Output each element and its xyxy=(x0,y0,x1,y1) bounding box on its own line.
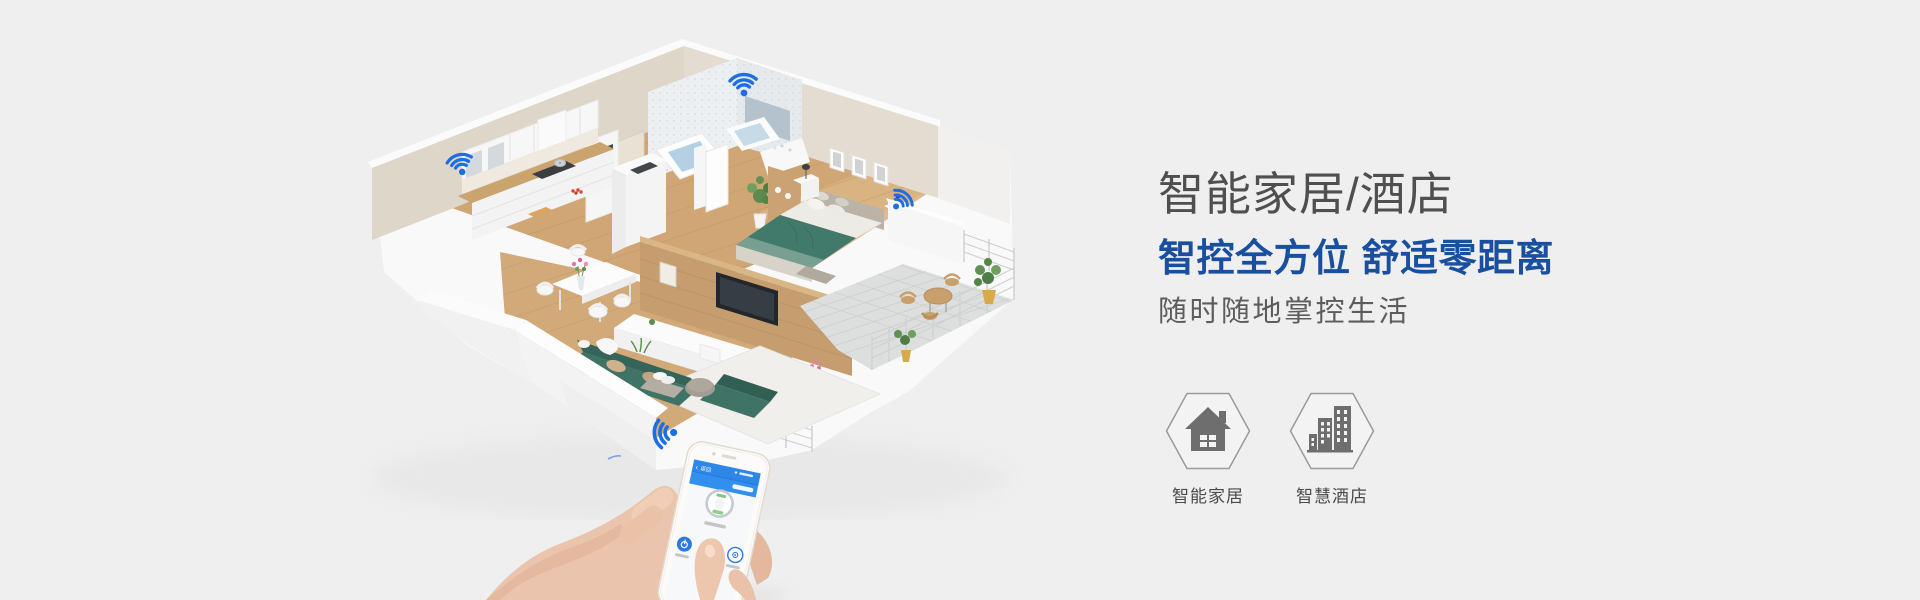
page-title: 智能家居/酒店 xyxy=(1158,168,1554,221)
feature-label: 智能家居 xyxy=(1172,482,1244,507)
hero-banner: ‹ 返回 xyxy=(0,0,1920,600)
feature-smart-home: 智能家居 xyxy=(1164,392,1252,507)
feature-smart-hotel: 智慧酒店 xyxy=(1288,392,1376,507)
page-tagline: 随时随地掌控生活 xyxy=(1158,297,1554,329)
bathroom-door xyxy=(706,144,728,212)
feature-list: 智能家居 xyxy=(1164,392,1376,507)
feature-label: 智慧酒店 xyxy=(1296,482,1368,507)
hotel-hexagon xyxy=(1289,392,1375,470)
phone-mockup: ‹ 返回 xyxy=(470,395,810,600)
page-subtitle: 智控全方位 舒适零距离 xyxy=(1158,239,1554,281)
home-hexagon xyxy=(1165,392,1251,470)
